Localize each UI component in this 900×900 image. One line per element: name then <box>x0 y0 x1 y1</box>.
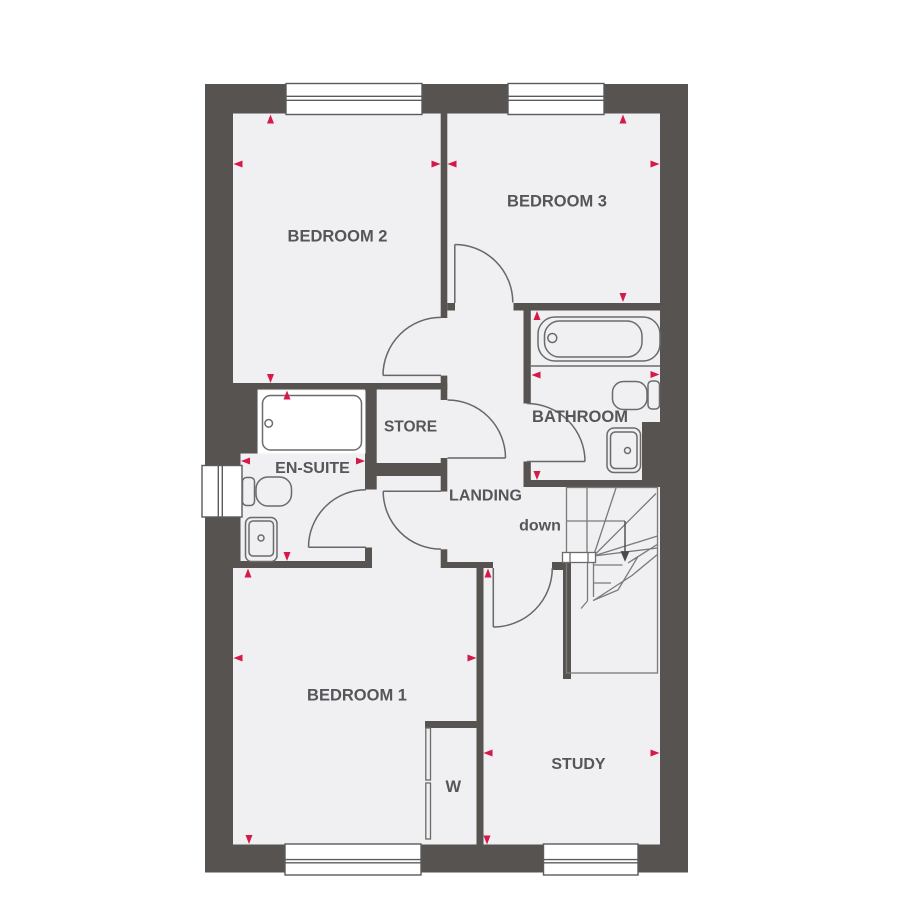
svg-text:LANDING: LANDING <box>449 488 522 505</box>
svg-text:BEDROOM 2: BEDROOM 2 <box>288 228 388 246</box>
svg-text:BEDROOM 1: BEDROOM 1 <box>307 687 407 705</box>
svg-text:BEDROOM 3: BEDROOM 3 <box>507 193 607 211</box>
svg-text:down: down <box>519 518 561 535</box>
svg-text:W: W <box>446 778 462 796</box>
svg-text:BATHROOM: BATHROOM <box>532 408 628 426</box>
svg-text:EN-SUITE: EN-SUITE <box>275 460 350 477</box>
svg-text:STUDY: STUDY <box>551 756 606 773</box>
svg-text:STORE: STORE <box>384 419 437 436</box>
